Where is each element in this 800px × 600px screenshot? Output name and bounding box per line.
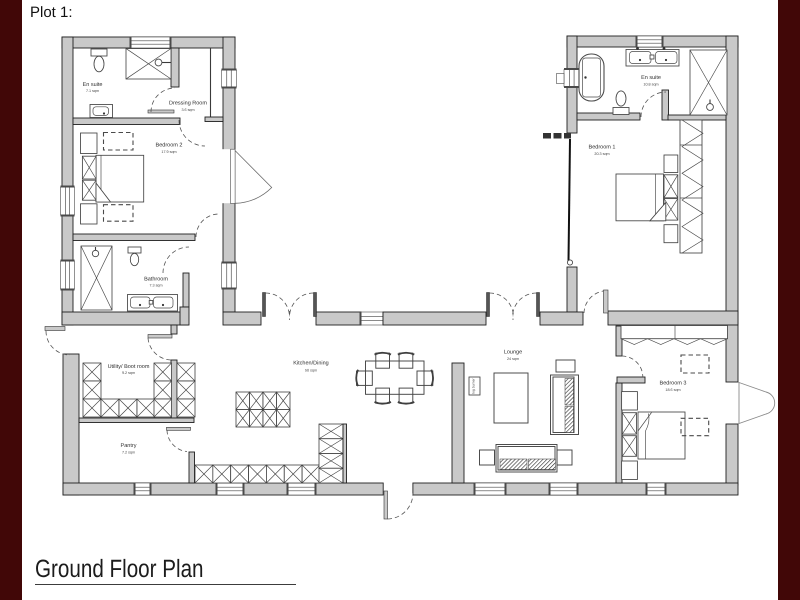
svg-text:Bedroom 2: Bedroom 2 [156,143,183,149]
svg-text:50 sqm: 50 sqm [305,369,317,373]
svg-text:20.3 sqm: 20.3 sqm [594,152,609,156]
svg-text:Kitchen/Dining: Kitchen/Dining [293,361,328,367]
svg-text:10.8 sqm: 10.8 sqm [643,83,658,87]
svg-text:7.2 sqm: 7.2 sqm [122,450,135,454]
svg-text:Pantry: Pantry [121,443,137,449]
svg-text:Dressing Room: Dressing Room [169,100,207,106]
svg-text:24 sqm: 24 sqm [507,357,519,361]
svg-text:log burner: log burner [472,378,476,394]
svg-text:17.9 sqm: 17.9 sqm [161,150,176,154]
svg-text:9.2 sqm: 9.2 sqm [122,371,135,375]
svg-text:En suite: En suite [83,82,103,88]
svg-text:Utility/ Boot room: Utility/ Boot room [108,364,150,370]
svg-text:7.1 sqm: 7.1 sqm [86,89,99,93]
svg-text:En suite: En suite [641,75,661,81]
svg-text:Lounge: Lounge [504,349,522,355]
svg-text:18.6 sqm: 18.6 sqm [665,388,680,392]
svg-text:7.3 sqm: 7.3 sqm [149,284,162,288]
svg-text:Bedroom 3: Bedroom 3 [660,381,687,387]
svg-text:Bathroom: Bathroom [144,276,168,282]
svg-text:Bedroom 1: Bedroom 1 [589,145,616,151]
svg-text:3.6 sqm: 3.6 sqm [181,108,194,112]
